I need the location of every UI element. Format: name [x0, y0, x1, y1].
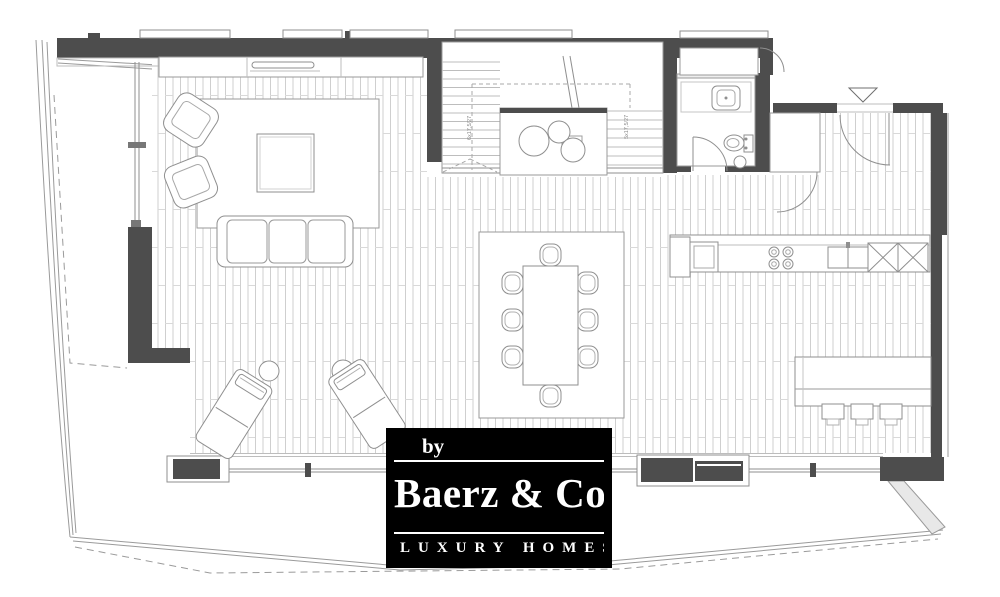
setback-dashed-line: [54, 95, 127, 368]
floorplan-canvas: 6x17,5/27 5x17,5/27: [0, 0, 1000, 597]
dining-table: [523, 266, 578, 385]
bathroom-east-wall: [755, 73, 770, 172]
bathroom: [677, 74, 755, 171]
window: [350, 30, 428, 38]
entry-wall: [773, 103, 837, 113]
west-wall: [128, 227, 152, 363]
window: [140, 30, 230, 38]
stair-label-right: 5x17,5/27: [624, 115, 630, 139]
tv-sideboard: [159, 57, 423, 77]
dining-area: [479, 232, 624, 418]
window: [680, 31, 768, 38]
stair-label-left: 6x17,5/27: [467, 116, 473, 140]
kitchen-tall-unit: [670, 237, 690, 277]
logo-brand-name: Baerz & Co: [394, 462, 604, 532]
kitchen: [670, 235, 930, 277]
closet: [770, 113, 820, 172]
window: [283, 30, 342, 38]
tv: [252, 62, 314, 68]
entrance-arrow-icon: [849, 88, 877, 102]
sofa: [217, 216, 353, 267]
window: [455, 30, 572, 38]
staircase: 6x17,5/27 5x17,5/27: [442, 42, 663, 175]
stair-east-wall: [663, 42, 677, 173]
railing-post: [810, 463, 816, 477]
logo-by-text: by: [394, 433, 604, 460]
toilet: [724, 135, 753, 152]
coffee-table: [257, 134, 314, 192]
bar-table: [795, 357, 931, 406]
east-wall: [931, 113, 947, 235]
bathroom-bin: [734, 156, 746, 168]
corner-wall-diagonal: [888, 481, 945, 534]
baerz-logo: by Baerz & Co LUXURY HOMES: [386, 428, 612, 568]
southeast-corner-wall: [880, 457, 944, 481]
bar-stools: [822, 404, 902, 425]
logo-tagline: LUXURY HOMES: [394, 534, 604, 562]
kitchen-appliance-cabinets: [868, 243, 928, 272]
closet: [680, 48, 758, 75]
side-table: [259, 361, 279, 381]
railing-post: [305, 463, 311, 477]
stair-west-wall: [427, 42, 442, 162]
